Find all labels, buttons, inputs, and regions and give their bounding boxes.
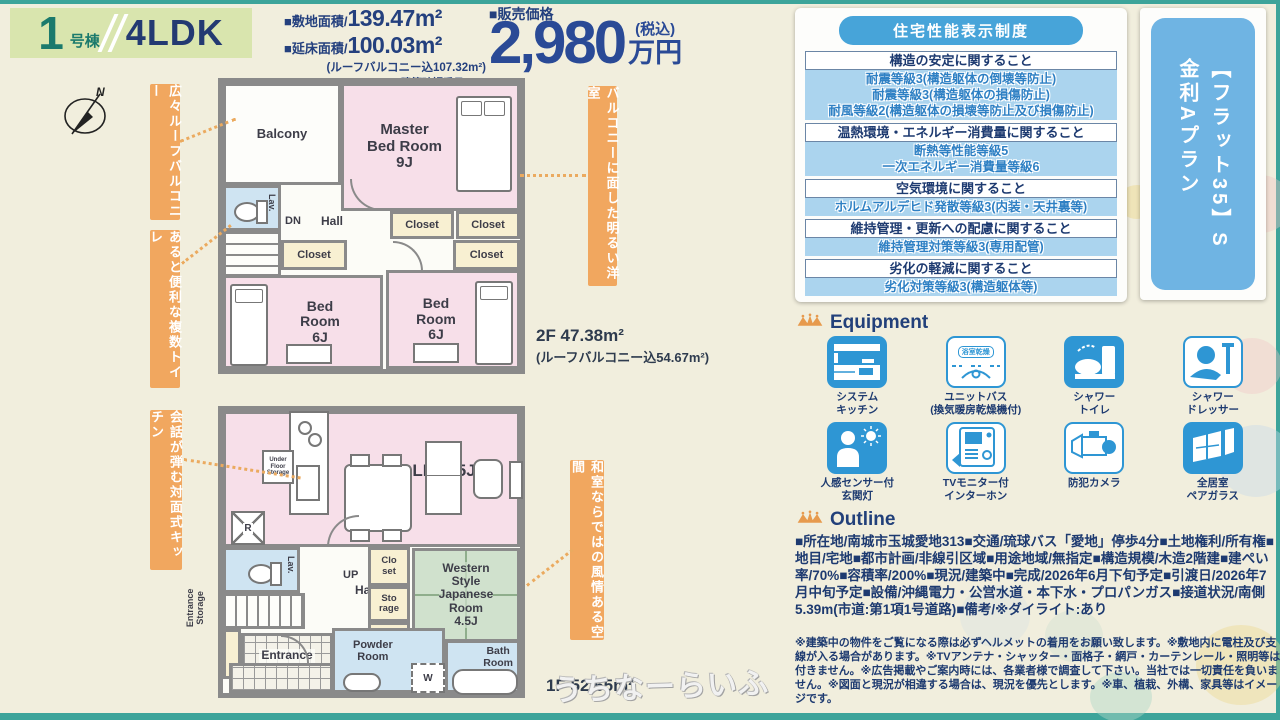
callout-multiple-toilets: あると便利な複数トイレ: [150, 230, 180, 388]
room-closet: Closet: [390, 211, 454, 239]
flat35-banner: 【フラット35】S 金利Aプラン: [1140, 8, 1266, 300]
equipment-item: 人感センサー付 玄関灯: [798, 422, 917, 502]
stairs-up-label: UP: [343, 569, 358, 581]
unit-number: 1: [38, 10, 64, 56]
performance-category: 空気環境に関すること: [805, 179, 1117, 198]
performance-category: 温熱環境・エネルギー消費量に関すること: [805, 123, 1117, 142]
land-area-value: 139.47m²: [347, 5, 441, 32]
floor-area-note: (ルーフバルコニー込107.32m²): [284, 59, 486, 75]
single-bed: [230, 284, 268, 366]
refrigerator-space: R: [231, 511, 265, 545]
washer-space: W: [411, 663, 445, 693]
unit-layout: 4LDK: [126, 12, 224, 54]
bathtub: [452, 669, 518, 695]
performance-category: 劣化の軽減に関すること: [805, 259, 1117, 278]
room-closet: Closet: [281, 240, 347, 270]
outline-title: Outline: [830, 509, 895, 531]
leader-line: [520, 174, 586, 177]
performance-group: 構造の安定に関すること 耐震等級3(構造躯体の倒壊等防止) 耐震等級3(構造躯体…: [805, 51, 1117, 120]
dining-chair: [350, 454, 370, 467]
outline-heading: Outline: [795, 509, 895, 531]
shelf: [509, 461, 523, 499]
unit-bath-icon: 浴室乾燥: [946, 336, 1006, 388]
bottom-border: [0, 713, 1280, 720]
callout-japanese-room: 和室ならではの風情ある空間: [570, 460, 604, 640]
entrance-storage-label: Entrance Storage: [186, 568, 206, 648]
floor-area-value: 100.03m²: [347, 32, 441, 59]
performance-grade: 耐震等級3(構造躯体の損傷防止): [805, 87, 1117, 103]
equipment-item: TVモニター付 インターホン: [917, 422, 1036, 502]
staircase-up: [223, 593, 305, 629]
ornament-icon: [795, 509, 825, 531]
room-label: Lav.: [285, 556, 295, 573]
performance-grade: 断熱等性能等級5: [805, 143, 1117, 159]
room-closet: Closet: [456, 211, 520, 239]
desk: [286, 344, 332, 364]
motion-sensor-light-icon: [827, 422, 887, 474]
compass-icon: N: [60, 84, 114, 145]
hall-label: Hall: [321, 215, 343, 228]
land-area-label: ■敷地面積/: [284, 11, 347, 30]
room-label: Lav.: [266, 194, 276, 211]
staircase-down: [223, 231, 281, 277]
room-label: Closet: [297, 249, 331, 261]
room-label: R: [243, 523, 252, 534]
floor-2f-area: 2F 47.38m²: [536, 326, 624, 346]
pair-glass-icon: [1183, 422, 1243, 474]
kitchen-counter: [289, 411, 329, 515]
floor-area-label: ■延床面積/: [284, 38, 347, 57]
performance-grade: 劣化対策等級3(構造躯体等): [805, 279, 1117, 295]
bath-dryer-badge: 浴室乾燥: [958, 346, 994, 358]
tv-intercom-icon: [946, 422, 1006, 474]
dining-chair: [382, 529, 402, 542]
equipment-grid: システム キッチン 浴室乾燥 ユニットバス (換気暖房乾燥機付) シャワー トイ…: [798, 336, 1272, 502]
shower-dresser-icon: [1183, 336, 1243, 388]
toilet-tank: [270, 562, 282, 586]
equipment-item: シャワー ドレッサー: [1154, 336, 1273, 416]
under-floor-storage: Under Floor Storage: [262, 450, 294, 484]
performance-grade: ホルムアルデヒド発散等級3(内装・天井裏等): [805, 199, 1117, 215]
sink-fixture: [343, 673, 381, 692]
top-border: [0, 0, 1280, 4]
floor-plan-2f: Balcony Master Bed Room 9J Lav. DN Hall …: [218, 78, 525, 374]
performance-grade: 一次エネルギー消費量等級6: [805, 159, 1117, 175]
ornament-icon: [795, 312, 825, 334]
equipment-item: システム キッチン: [798, 336, 917, 416]
room-label: Balcony: [257, 127, 308, 141]
performance-category: 維持管理・更新への配慮に関すること: [805, 219, 1117, 238]
room-label: Western Style Japanese Room 4.5J: [439, 562, 494, 628]
equipment-item: 全居室 ペアガラス: [1154, 422, 1273, 502]
room-storage: Sto rage: [368, 586, 410, 622]
dining-chair: [382, 454, 402, 467]
performance-group: 空気環境に関すること ホルムアルデヒド発散等級3(内装・天井裏等): [805, 179, 1117, 216]
equipment-heading: Equipment: [795, 312, 928, 334]
room-powder: Powder Room W: [332, 628, 445, 693]
desk: [413, 343, 459, 363]
price-unit: 万円: [628, 39, 682, 67]
price-block: 2,980 (税込) 万円: [489, 14, 682, 71]
room-bedroom-left: Bed Room 6J: [223, 275, 383, 369]
callout-counter-kitchen: 会話が弾む対面式キッチン: [150, 410, 182, 570]
room-label: Closet: [471, 219, 505, 231]
room-closet: Closet: [453, 240, 520, 270]
shower-toilet-icon: [1064, 336, 1124, 388]
entrance-porch: [229, 663, 333, 693]
outline-details: ■所在地/南城市玉城愛地313■交通/琉球バス「愛地」停歩4分■土地権利/所有権…: [795, 533, 1279, 618]
flat35-text: 【フラット35】S 金利Aプラン: [1171, 58, 1235, 250]
single-bed: [475, 281, 513, 365]
door-arc: [393, 241, 423, 271]
room-label: Closet: [470, 249, 504, 261]
room-label: Master Bed Room 9J: [367, 122, 442, 172]
equipment-item: 浴室乾燥 ユニットバス (換気暖房乾燥機付): [917, 336, 1036, 416]
equipment-title: Equipment: [830, 312, 928, 334]
performance-category: 構造の安定に関すること: [805, 51, 1117, 70]
stairs-dn-label: DN: [285, 215, 301, 227]
kitchen-sink: [296, 465, 320, 501]
callout-roof-balcony: 広々ルーフバルコニー: [150, 84, 180, 220]
outline-notes: ※建築中の物件をご覧になる際は必ずヘルメットの着用をお願い致します。※敷地内に電…: [795, 636, 1280, 706]
unit-suffix: 号棟: [70, 30, 100, 51]
double-bed: [456, 96, 512, 192]
tv-board: [425, 441, 462, 515]
room-bedroom-right: Bed Room 6J: [386, 270, 520, 369]
room-label: Bed Room 6J: [300, 299, 340, 345]
security-camera-icon: [1064, 422, 1124, 474]
performance-grade: 耐震等級3(構造躯体の倒壊等防止): [805, 71, 1117, 87]
leader-line: [526, 549, 574, 587]
performance-group: 劣化の軽減に関すること 劣化対策等級3(構造躯体等): [805, 259, 1117, 296]
price-tax-note: (税込): [628, 18, 682, 39]
performance-grade: 耐風等級2(構造躯体の損壊等防止及び損傷防止): [805, 103, 1117, 119]
room-ldk: LDK15J Under Floor Storage R: [223, 411, 520, 547]
compass-north-label: N: [96, 85, 105, 99]
room-lavatory-2f: Lav.: [223, 185, 281, 231]
performance-grade: 維持管理対策等級3(専用配管): [805, 239, 1117, 255]
room-label: Bed Room 6J: [416, 296, 456, 342]
flyer-page: 1 号棟 4LDK ■敷地面積/ 139.47m² ■延床面積/ 100.03m…: [0, 0, 1280, 720]
callout-bright-bedroom: バルコニーに面した明るい洋室: [588, 86, 617, 286]
room-label: Bath Room: [483, 646, 513, 669]
performance-group: 温熱環境・エネルギー消費量に関すること 断熱等性能等級5 一次エネルギー消費量等…: [805, 123, 1117, 176]
room-lavatory-1f: Lav.: [223, 547, 300, 593]
price-value: 2,980: [489, 14, 624, 71]
room-balcony: Balcony: [223, 83, 341, 185]
room-bath: Bath Room: [445, 640, 520, 693]
system-kitchen-icon: [827, 336, 887, 388]
unit-title-box: 1 号棟 4LDK: [10, 8, 252, 58]
performance-group: 維持管理・更新への配慮に関すること 維持管理対策等級3(専用配管): [805, 219, 1117, 256]
floor-plan-1f: LDK15J Under Floor Storage R: [218, 406, 525, 698]
watermark: うちなーらいふ: [551, 658, 769, 710]
performance-title: 住宅性能表示制度: [839, 16, 1083, 45]
room-label: Powder Room: [353, 639, 393, 663]
room-label: Clo set: [381, 556, 396, 577]
floor-2f-area-note: (ルーフバルコニー込54.67m²): [536, 347, 709, 366]
room-label: Closet: [405, 219, 439, 231]
performance-panel: 住宅性能表示制度 構造の安定に関すること 耐震等級3(構造躯体の倒壊等防止) 耐…: [795, 8, 1127, 302]
equipment-item: 防犯カメラ: [1035, 422, 1154, 502]
room-closet: Clo set: [368, 547, 410, 586]
sofa: [473, 459, 503, 499]
equipment-item: シャワー トイレ: [1035, 336, 1154, 416]
room-label: Sto rage: [379, 594, 399, 615]
room-label: W: [423, 673, 432, 684]
